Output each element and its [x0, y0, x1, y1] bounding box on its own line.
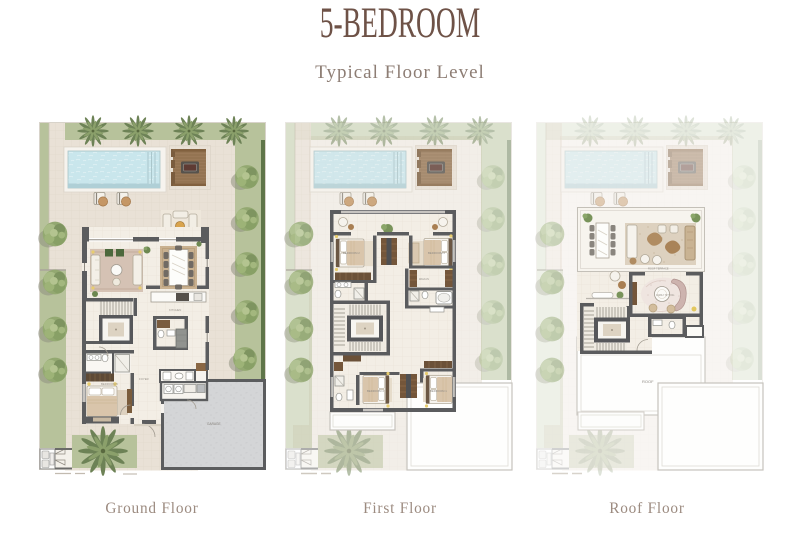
- svg-text:BEDROOM 2: BEDROOM 2: [343, 251, 360, 255]
- svg-text:BEDROOM 5: BEDROOM 5: [101, 382, 118, 386]
- svg-text:GARAGE: GARAGE: [207, 422, 221, 426]
- svg-text:FOYER: FOYER: [139, 377, 149, 381]
- svg-text:FAMILY SITTING: FAMILY SITTING: [656, 294, 675, 297]
- svg-text:WALK-IN: WALK-IN: [419, 278, 429, 281]
- svg-text:ROOF: ROOF: [642, 379, 654, 384]
- svg-text:BEDROOM 1: BEDROOM 1: [430, 389, 447, 393]
- svg-text:BEDROOM 4: BEDROOM 4: [367, 389, 384, 393]
- svg-text:ROOF TERRACE: ROOF TERRACE: [648, 267, 669, 271]
- svg-text:KITCHEN: KITCHEN: [169, 308, 181, 312]
- svg-text:BEDROOM 3: BEDROOM 3: [428, 251, 445, 255]
